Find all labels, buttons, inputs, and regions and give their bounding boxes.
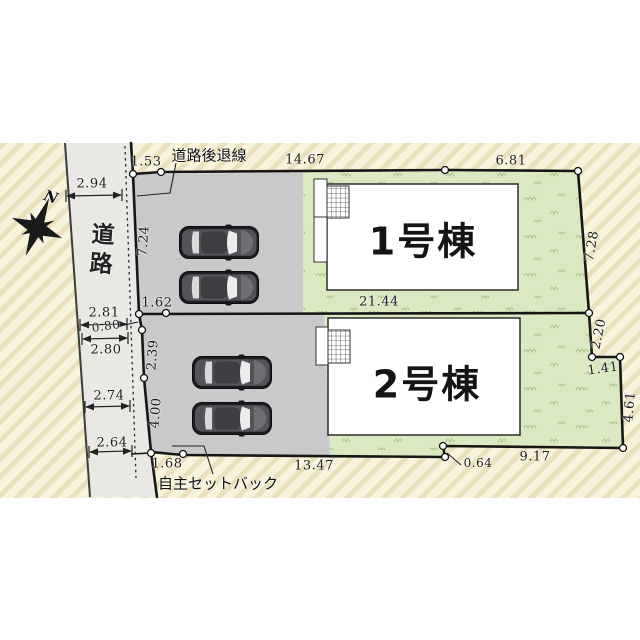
- building2-porch: [316, 327, 350, 365]
- self-setback-label: 自主セットバック: [158, 473, 278, 494]
- road-width-mid: 2.80: [91, 343, 122, 358]
- dim-lot1-north-setback: 1.53: [131, 155, 162, 170]
- dim-lot2-south-step: 0.64: [464, 456, 493, 470]
- north-arrow-icon: [1, 187, 75, 266]
- dim-lot2-south-east: 9.17: [520, 450, 551, 465]
- site-plan: N 道路 道路後退線 自主セットバック 2.94 2.81 2.80 2.74 …: [0, 0, 640, 640]
- car-icon: [193, 355, 272, 391]
- dim-lot1-south-setback: 1.62: [142, 296, 173, 311]
- car-icon: [193, 401, 272, 437]
- dim-lot1-south: 21.44: [359, 295, 399, 310]
- dim-lot2-west-upper: 2.39: [144, 339, 161, 371]
- dim-lot2-west-lower: 4.00: [147, 397, 164, 429]
- road-width-top: 2.94: [77, 177, 108, 192]
- road-setback-line-label: 道路後退線: [171, 145, 246, 166]
- car-icon: [180, 225, 259, 261]
- building2-name: 2号棟: [373, 354, 481, 409]
- building1-name: 1号棟: [369, 211, 477, 266]
- dim-lot2-east-lower: 4.61: [621, 391, 639, 423]
- dim-lot1-north-main: 14.67: [285, 153, 325, 168]
- dim-lot1-north-east: 6.81: [496, 154, 527, 169]
- dim-lot1-west: 7.24: [135, 225, 152, 257]
- road-width-lower: 2.74: [94, 389, 125, 404]
- dim-lot2-south-main: 13.47: [294, 459, 334, 474]
- car-icon: [180, 270, 259, 306]
- dim-lot2-south-setback: 1.68: [152, 457, 183, 472]
- road-name-label: 道路: [80, 221, 118, 281]
- road-width-bottom: 2.64: [97, 436, 128, 451]
